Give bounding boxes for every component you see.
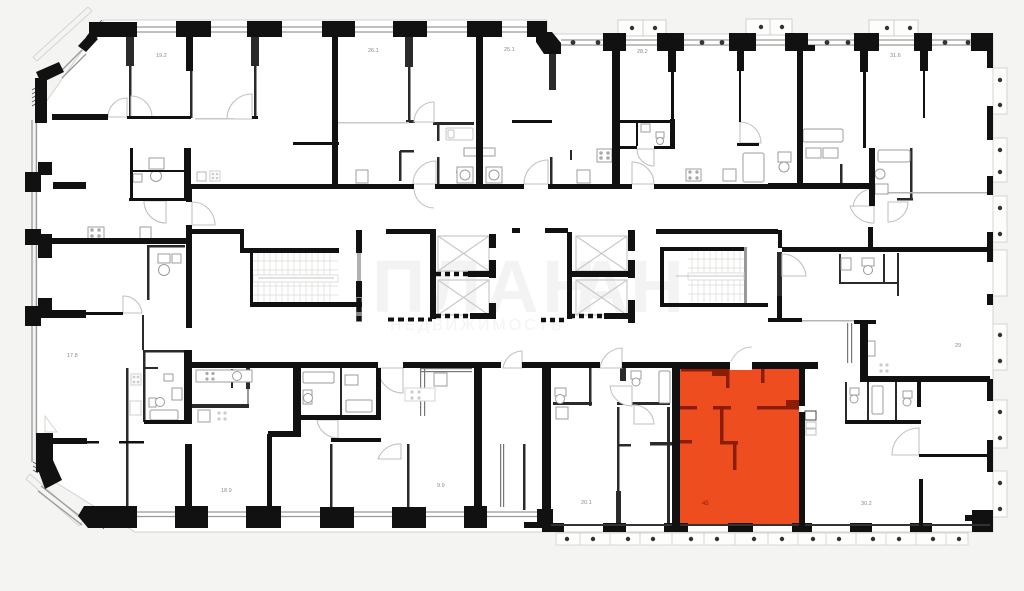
svg-text:25.1: 25.1	[504, 47, 515, 53]
svg-text:45: 45	[702, 501, 709, 507]
svg-text:29: 29	[955, 343, 961, 349]
svg-text:НЕДВИЖИМОСТЬ: НЕДВИЖИМОСТЬ	[390, 317, 565, 334]
svg-text:18.9: 18.9	[221, 488, 232, 494]
svg-text:9.9: 9.9	[437, 483, 445, 489]
svg-text:31.6: 31.6	[890, 53, 901, 59]
svg-text:17.8: 17.8	[67, 353, 78, 359]
svg-text:19.2: 19.2	[156, 53, 167, 59]
svg-text:30.2: 30.2	[861, 501, 872, 507]
svg-text:26.1: 26.1	[368, 48, 379, 54]
svg-text:28.2: 28.2	[637, 49, 648, 55]
svg-text:20.1: 20.1	[581, 500, 592, 506]
